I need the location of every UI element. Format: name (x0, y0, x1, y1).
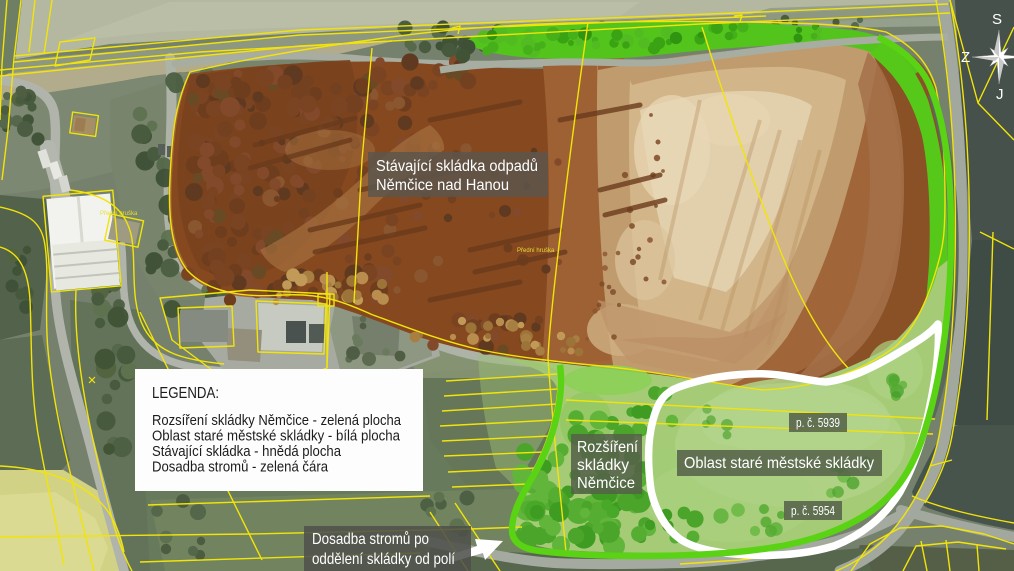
svg-text:skládky: skládky (577, 457, 629, 474)
svg-text:oddělení skládky od polí: oddělení skládky od polí (312, 551, 455, 568)
svg-text:Přední hruška: Přední hruška (517, 248, 555, 254)
svg-text:Oblast staré městské skládky -: Oblast staré městské skládky - bílá ploc… (152, 428, 401, 445)
svg-text:p. č. 5954: p. č. 5954 (791, 503, 835, 518)
svg-text:Stávající skládka odpadů: Stávající skládka odpadů (376, 157, 538, 175)
svg-text:Přední hruška: Přední hruška (100, 211, 138, 217)
svg-text:Němčice nad Hanou: Němčice nad Hanou (376, 177, 509, 194)
svg-text:Dosadba stromů - zelená čára: Dosadba stromů - zelená čára (152, 459, 329, 476)
svg-text:LEGENDA:: LEGENDA: (152, 385, 219, 402)
svg-text:J: J (996, 86, 1004, 103)
svg-text:Stávající skládka - hnědá ploc: Stávající skládka - hnědá plocha (152, 443, 342, 460)
svg-text:S: S (992, 11, 1002, 28)
svg-text:Rozsíření skládky Němčice - ze: Rozsíření skládky Němčice - zelená ploch… (152, 412, 402, 429)
svg-text:Němčice: Němčice (577, 475, 635, 492)
svg-text:Rozšíření: Rozšíření (577, 439, 639, 456)
svg-text:Oblast staré městské skládky: Oblast staré městské skládky (684, 455, 874, 472)
svg-text:p. č. 5939: p. č. 5939 (796, 415, 840, 430)
svg-text:Dosadba stromů po: Dosadba stromů po (312, 530, 429, 548)
svg-text:Z: Z (961, 49, 970, 66)
